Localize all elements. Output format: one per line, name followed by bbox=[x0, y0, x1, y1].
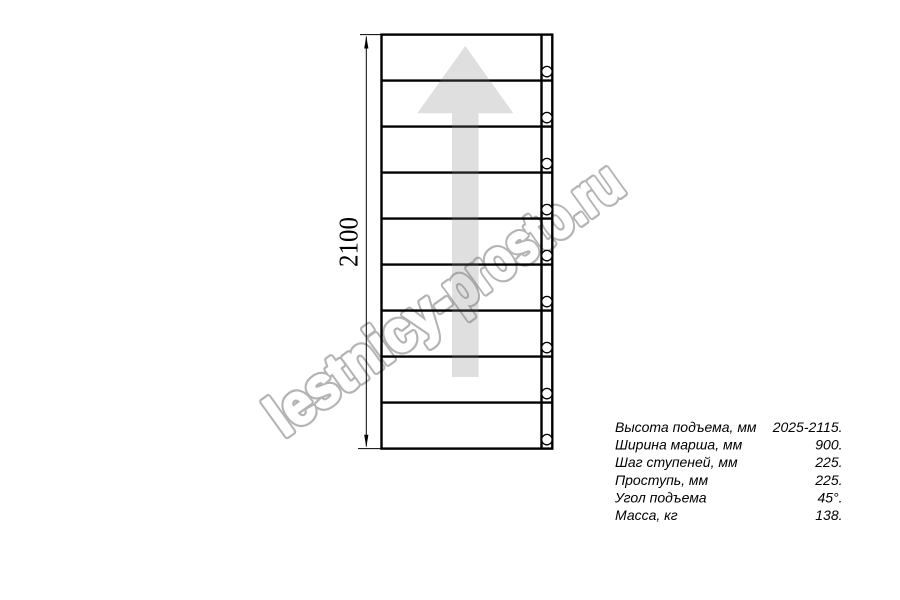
svg-text:Угол подъема: Угол подъема bbox=[614, 489, 707, 505]
svg-text:Проступь, мм: Проступь, мм bbox=[615, 472, 709, 488]
svg-text:2100: 2100 bbox=[333, 217, 364, 267]
svg-text:Шаг ступеней, мм: Шаг ступеней, мм bbox=[615, 454, 738, 470]
svg-text:45°.: 45°. bbox=[817, 489, 842, 505]
svg-text:Ширина марша, мм: Ширина марша, мм bbox=[615, 437, 743, 453]
svg-text:Масса, кг: Масса, кг bbox=[615, 507, 678, 523]
svg-text:900.: 900. bbox=[815, 437, 842, 453]
svg-text:138.: 138. bbox=[815, 507, 842, 523]
svg-text:Высота подъема, мм: Высота подъема, мм bbox=[615, 419, 757, 435]
svg-text:225.: 225. bbox=[814, 472, 842, 488]
svg-text:2025-2115.: 2025-2115. bbox=[772, 419, 843, 435]
svg-text:225.: 225. bbox=[814, 454, 842, 470]
